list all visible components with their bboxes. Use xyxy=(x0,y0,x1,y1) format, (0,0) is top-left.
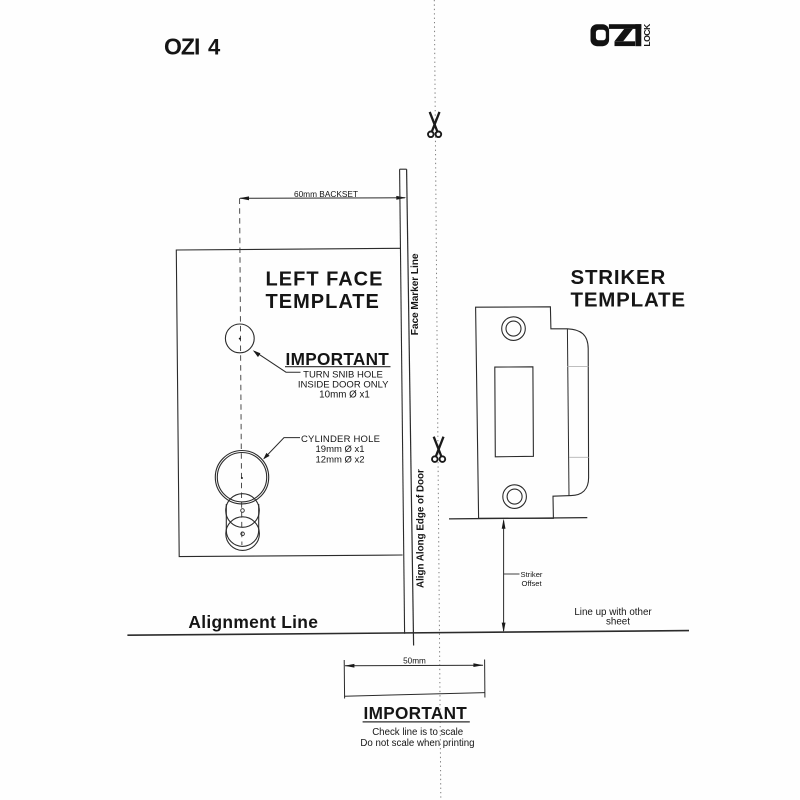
svg-text:Check line is to scale: Check line is to scale xyxy=(372,727,463,738)
svg-text:sheet: sheet xyxy=(606,617,630,628)
svg-text:12mm Ø x2: 12mm Ø x2 xyxy=(316,454,365,465)
svg-text:Offset: Offset xyxy=(522,579,543,588)
svg-text:LEFT FACE: LEFT FACE xyxy=(266,268,384,290)
svg-text:STRIKER: STRIKER xyxy=(571,266,667,289)
svg-text:Striker: Striker xyxy=(521,570,543,579)
svg-text:60mm BACKSET: 60mm BACKSET xyxy=(294,189,358,199)
svg-text:Face Marker Line: Face Marker Line xyxy=(410,253,421,335)
svg-text:OZI: OZI xyxy=(164,34,199,60)
svg-text:Align Along Edge of Door: Align Along Edge of Door xyxy=(415,469,426,588)
svg-text:TEMPLATE: TEMPLATE xyxy=(266,291,380,313)
svg-text:TEMPLATE: TEMPLATE xyxy=(571,289,686,312)
svg-text:CYLINDER HOLE: CYLINDER HOLE xyxy=(301,434,380,445)
svg-text:Alignment Line: Alignment Line xyxy=(188,612,318,632)
svg-text:50mm: 50mm xyxy=(403,656,426,665)
svg-text:4: 4 xyxy=(208,35,221,60)
svg-text:10mm Ø x1: 10mm Ø x1 xyxy=(319,390,370,401)
svg-text:IMPORTANT: IMPORTANT xyxy=(364,703,468,723)
svg-text:Do not scale when printing: Do not scale when printing xyxy=(360,738,474,749)
svg-text:IMPORTANT: IMPORTANT xyxy=(286,349,390,369)
svg-text:LOCK: LOCK xyxy=(642,23,652,47)
